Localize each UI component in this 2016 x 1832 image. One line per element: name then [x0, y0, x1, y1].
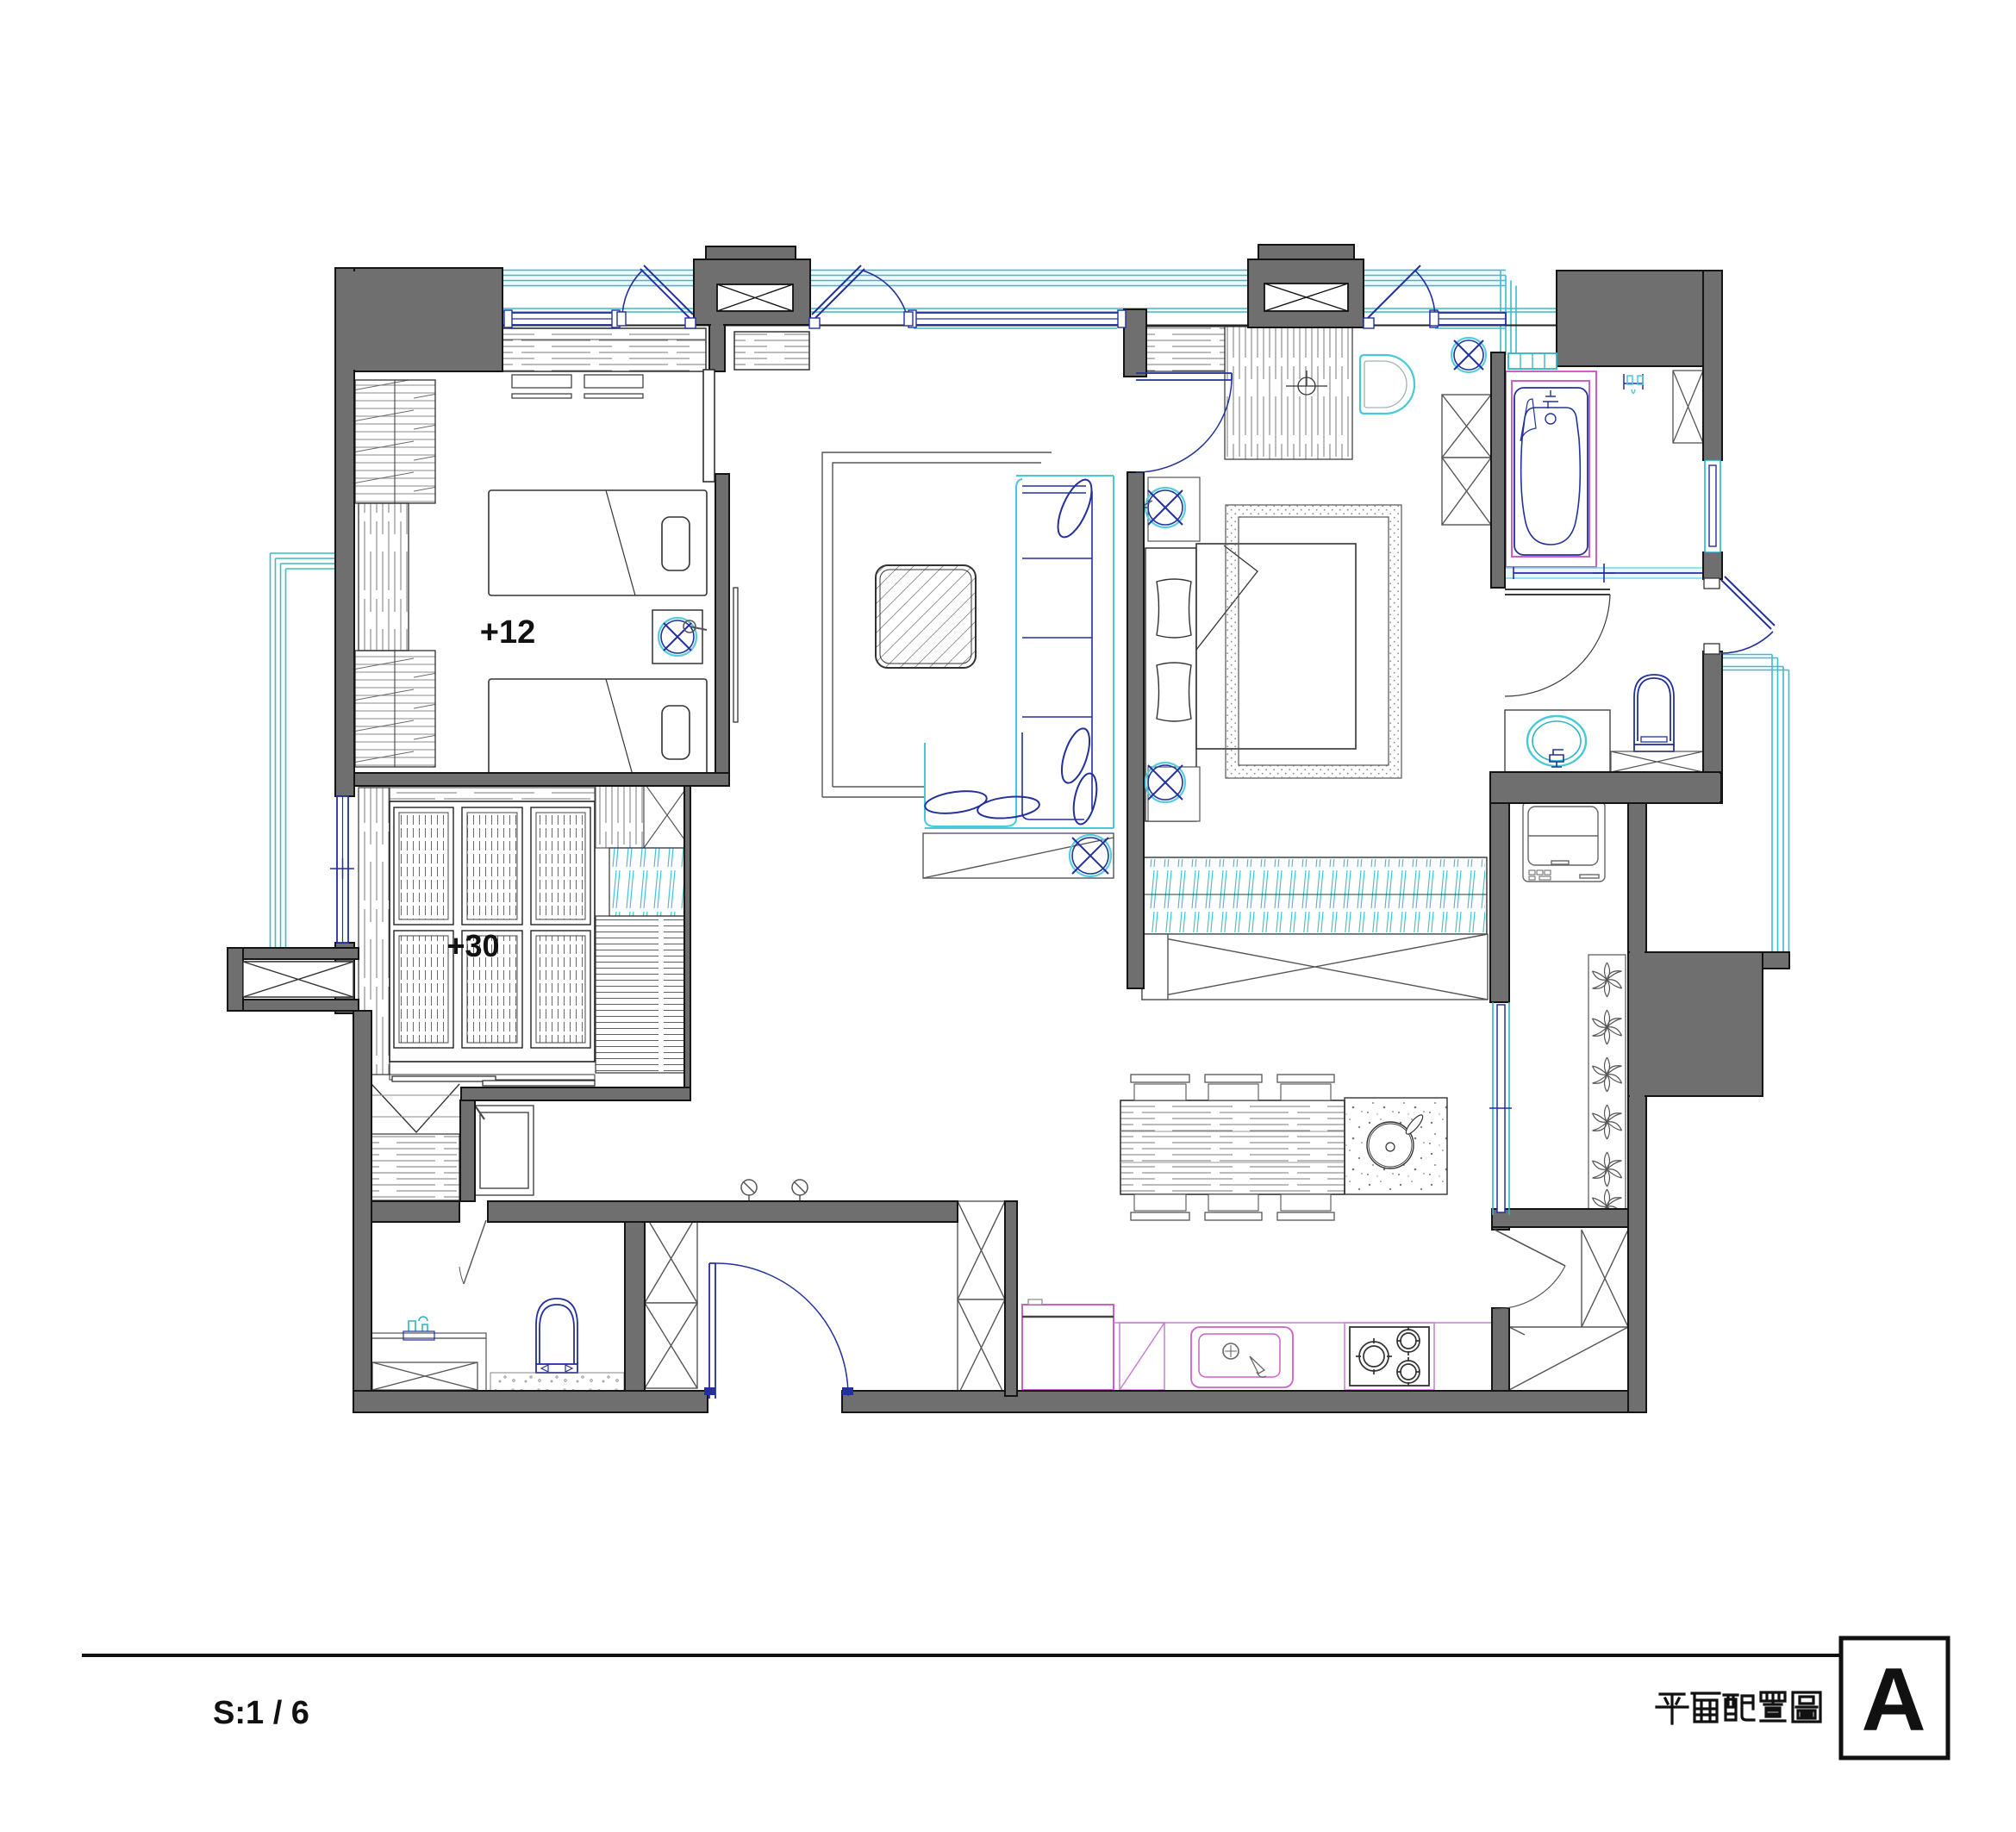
- svg-text:+12: +12: [480, 614, 535, 651]
- svg-text:+30: +30: [446, 928, 499, 963]
- svg-text:S:1 / 6: S:1 / 6: [213, 1695, 309, 1731]
- svg-text:A: A: [1861, 1650, 1925, 1750]
